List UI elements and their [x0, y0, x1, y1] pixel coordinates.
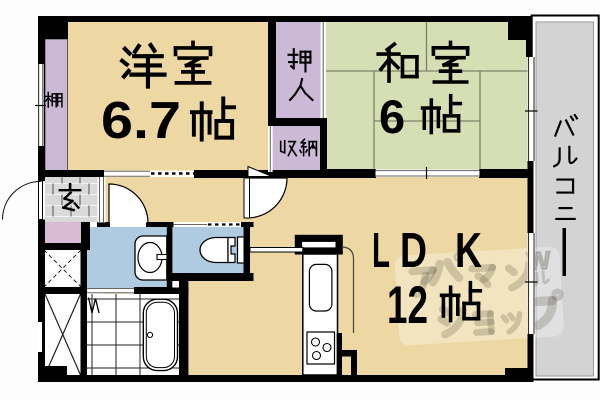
svg-text:D: D: [400, 224, 427, 278]
svg-text:K: K: [455, 224, 482, 278]
svg-text:6.7: 6.7: [101, 92, 181, 150]
svg-text:6: 6: [379, 90, 405, 143]
svg-text:12: 12: [387, 276, 428, 335]
svg-text:L: L: [372, 224, 390, 278]
